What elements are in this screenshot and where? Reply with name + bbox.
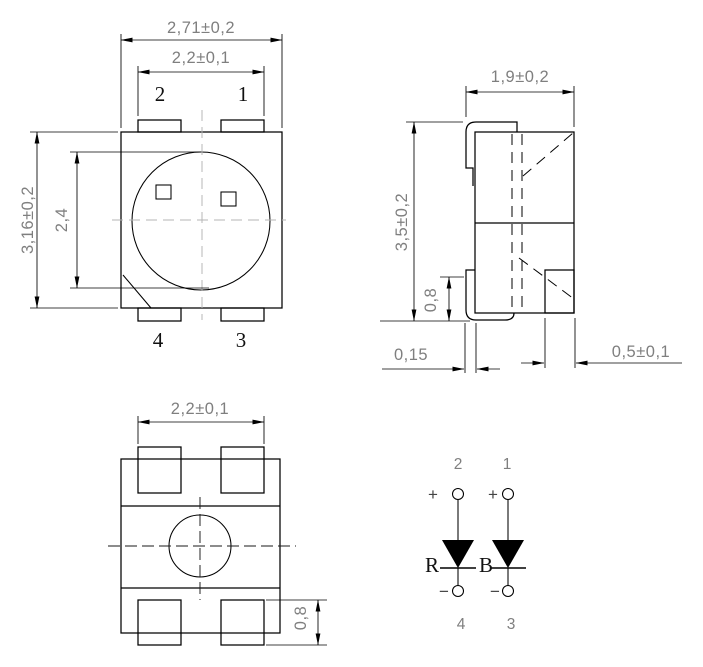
bottom-dim-pad-span: 2,2±0,1: [138, 400, 264, 444]
front-pin4-label: 4: [153, 328, 164, 352]
circuit-pin1-label: 1: [503, 456, 512, 473]
front-pin1-label: 1: [238, 82, 249, 106]
side-dim-lead-thickness: 0,15: [382, 323, 500, 373]
terminal-pin3: [503, 586, 514, 597]
die-chip-left: [156, 185, 171, 199]
drawing-canvas: 2,71±0,2 2,2±0,1 3,16±0,2 2,4 2 1 4 3: [0, 0, 703, 667]
diode-right-color-label: B: [479, 553, 493, 577]
side-dim-lead-height: 0,8: [422, 277, 464, 321]
front-pin2-tab: [138, 120, 181, 132]
diode-triangle-left: [442, 540, 474, 568]
bottom-pad-height-label: 0,8: [292, 606, 310, 630]
circuit-pin4-label: 4: [457, 616, 466, 633]
front-inner-width-label: 2,2±0,1: [172, 49, 230, 67]
side-height-label: 3,5±0,2: [393, 193, 411, 251]
side-lead-thickness-label: 0,15: [394, 346, 428, 364]
circuit-minus-right: −: [490, 582, 500, 601]
front-pin3-tab: [221, 308, 264, 321]
front-view: 2,71±0,2 2,2±0,1 3,16±0,2 2,4 2 1 4 3: [19, 19, 286, 352]
front-lens-height-label: 2,4: [53, 208, 71, 232]
circuit-plus-left: +: [428, 485, 438, 504]
diode-left-color-label: R: [425, 553, 439, 577]
front-dim-outer-width: 2,71±0,2: [121, 19, 282, 128]
polarity-chamfer: [123, 275, 151, 308]
side-view: 1,9±0,2 3,5±0,2 0,8 0,15: [380, 68, 682, 373]
side-lead-width-label: 0,5±0,1: [612, 343, 670, 361]
side-dim-width: 1,9±0,2: [466, 68, 574, 127]
front-outer-width-label: 2,71±0,2: [167, 19, 235, 37]
front-pin3-label: 3: [236, 328, 247, 352]
terminal-pin1: [503, 489, 514, 500]
terminal-pin4: [453, 586, 464, 597]
side-dim-lead-width: 0,5±0,1: [521, 318, 682, 368]
circuit-pin2-label: 2: [454, 456, 463, 473]
front-pin1-tab: [221, 120, 264, 132]
terminal-pin2: [453, 489, 464, 500]
side-lead-height-label: 0,8: [422, 288, 440, 312]
circuit-minus-left: −: [439, 582, 449, 601]
diode-blue: 1 + B − 3: [479, 456, 526, 633]
circuit-diagram: 2 + R − 4 1 + B − 3: [425, 456, 526, 633]
front-outer-height-label: 3,16±0,2: [19, 186, 37, 254]
side-width-label: 1,9±0,2: [491, 68, 549, 86]
diode-red: 2 + R − 4: [425, 456, 476, 633]
front-pin4-tab: [138, 308, 181, 321]
bottom-pad-span-label: 2,2±0,1: [171, 400, 229, 418]
led-dimension-drawing: 2,71±0,2 2,2±0,1 3,16±0,2 2,4 2 1 4 3: [0, 0, 703, 667]
bottom-pad-bottom-left: [138, 600, 181, 645]
bottom-view: 2,2±0,1 0,8: [108, 400, 327, 645]
diode-triangle-right: [492, 540, 524, 568]
bottom-pad-bottom-right: [221, 600, 264, 645]
bottom-dim-pad-height: 0,8: [266, 600, 327, 645]
circuit-plus-right: +: [488, 485, 498, 504]
side-right-lead: [545, 270, 574, 313]
bottom-pad-top-left: [138, 447, 181, 493]
front-pin2-label: 2: [155, 82, 166, 106]
bottom-pad-top-right: [221, 447, 264, 493]
circuit-pin3-label: 3: [507, 616, 516, 633]
die-chip-right: [221, 192, 236, 206]
lens-circle: [132, 152, 270, 290]
